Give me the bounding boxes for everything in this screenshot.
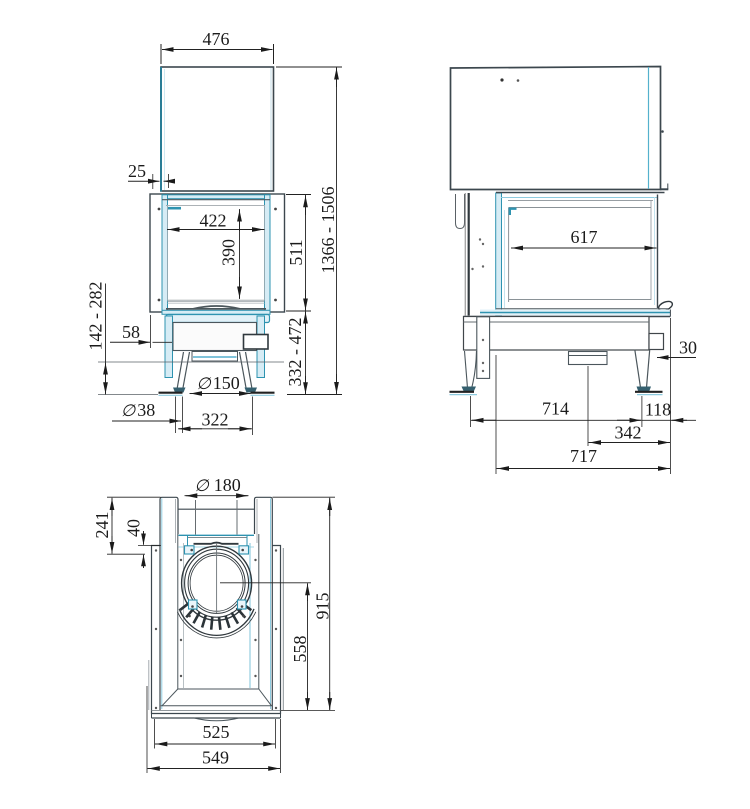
- svg-text:1366 - 1506: 1366 - 1506: [318, 187, 338, 274]
- svg-text:342: 342: [615, 423, 642, 443]
- svg-text:617: 617: [571, 227, 598, 247]
- svg-text:422: 422: [200, 211, 227, 231]
- svg-text:118: 118: [645, 400, 671, 420]
- svg-text:390: 390: [219, 239, 239, 266]
- svg-text:25: 25: [128, 161, 146, 181]
- svg-text:40: 40: [124, 519, 144, 537]
- svg-text:30: 30: [679, 338, 697, 358]
- svg-text:241: 241: [92, 512, 112, 539]
- svg-text:476: 476: [203, 29, 230, 49]
- svg-text:558: 558: [290, 636, 310, 663]
- svg-text:∅180: ∅180: [194, 475, 240, 495]
- svg-text:714: 714: [542, 399, 569, 419]
- svg-text:549: 549: [202, 748, 229, 768]
- svg-text:322: 322: [202, 410, 229, 430]
- svg-text:332 - 472: 332 - 472: [285, 318, 305, 387]
- svg-text:717: 717: [570, 446, 597, 466]
- svg-text:∅150: ∅150: [196, 373, 239, 393]
- svg-text:511: 511: [286, 239, 306, 265]
- svg-text:58: 58: [122, 322, 140, 342]
- svg-text:525: 525: [203, 722, 230, 742]
- svg-text:∅38: ∅38: [121, 400, 155, 420]
- svg-text:142 - 282: 142 - 282: [86, 282, 106, 351]
